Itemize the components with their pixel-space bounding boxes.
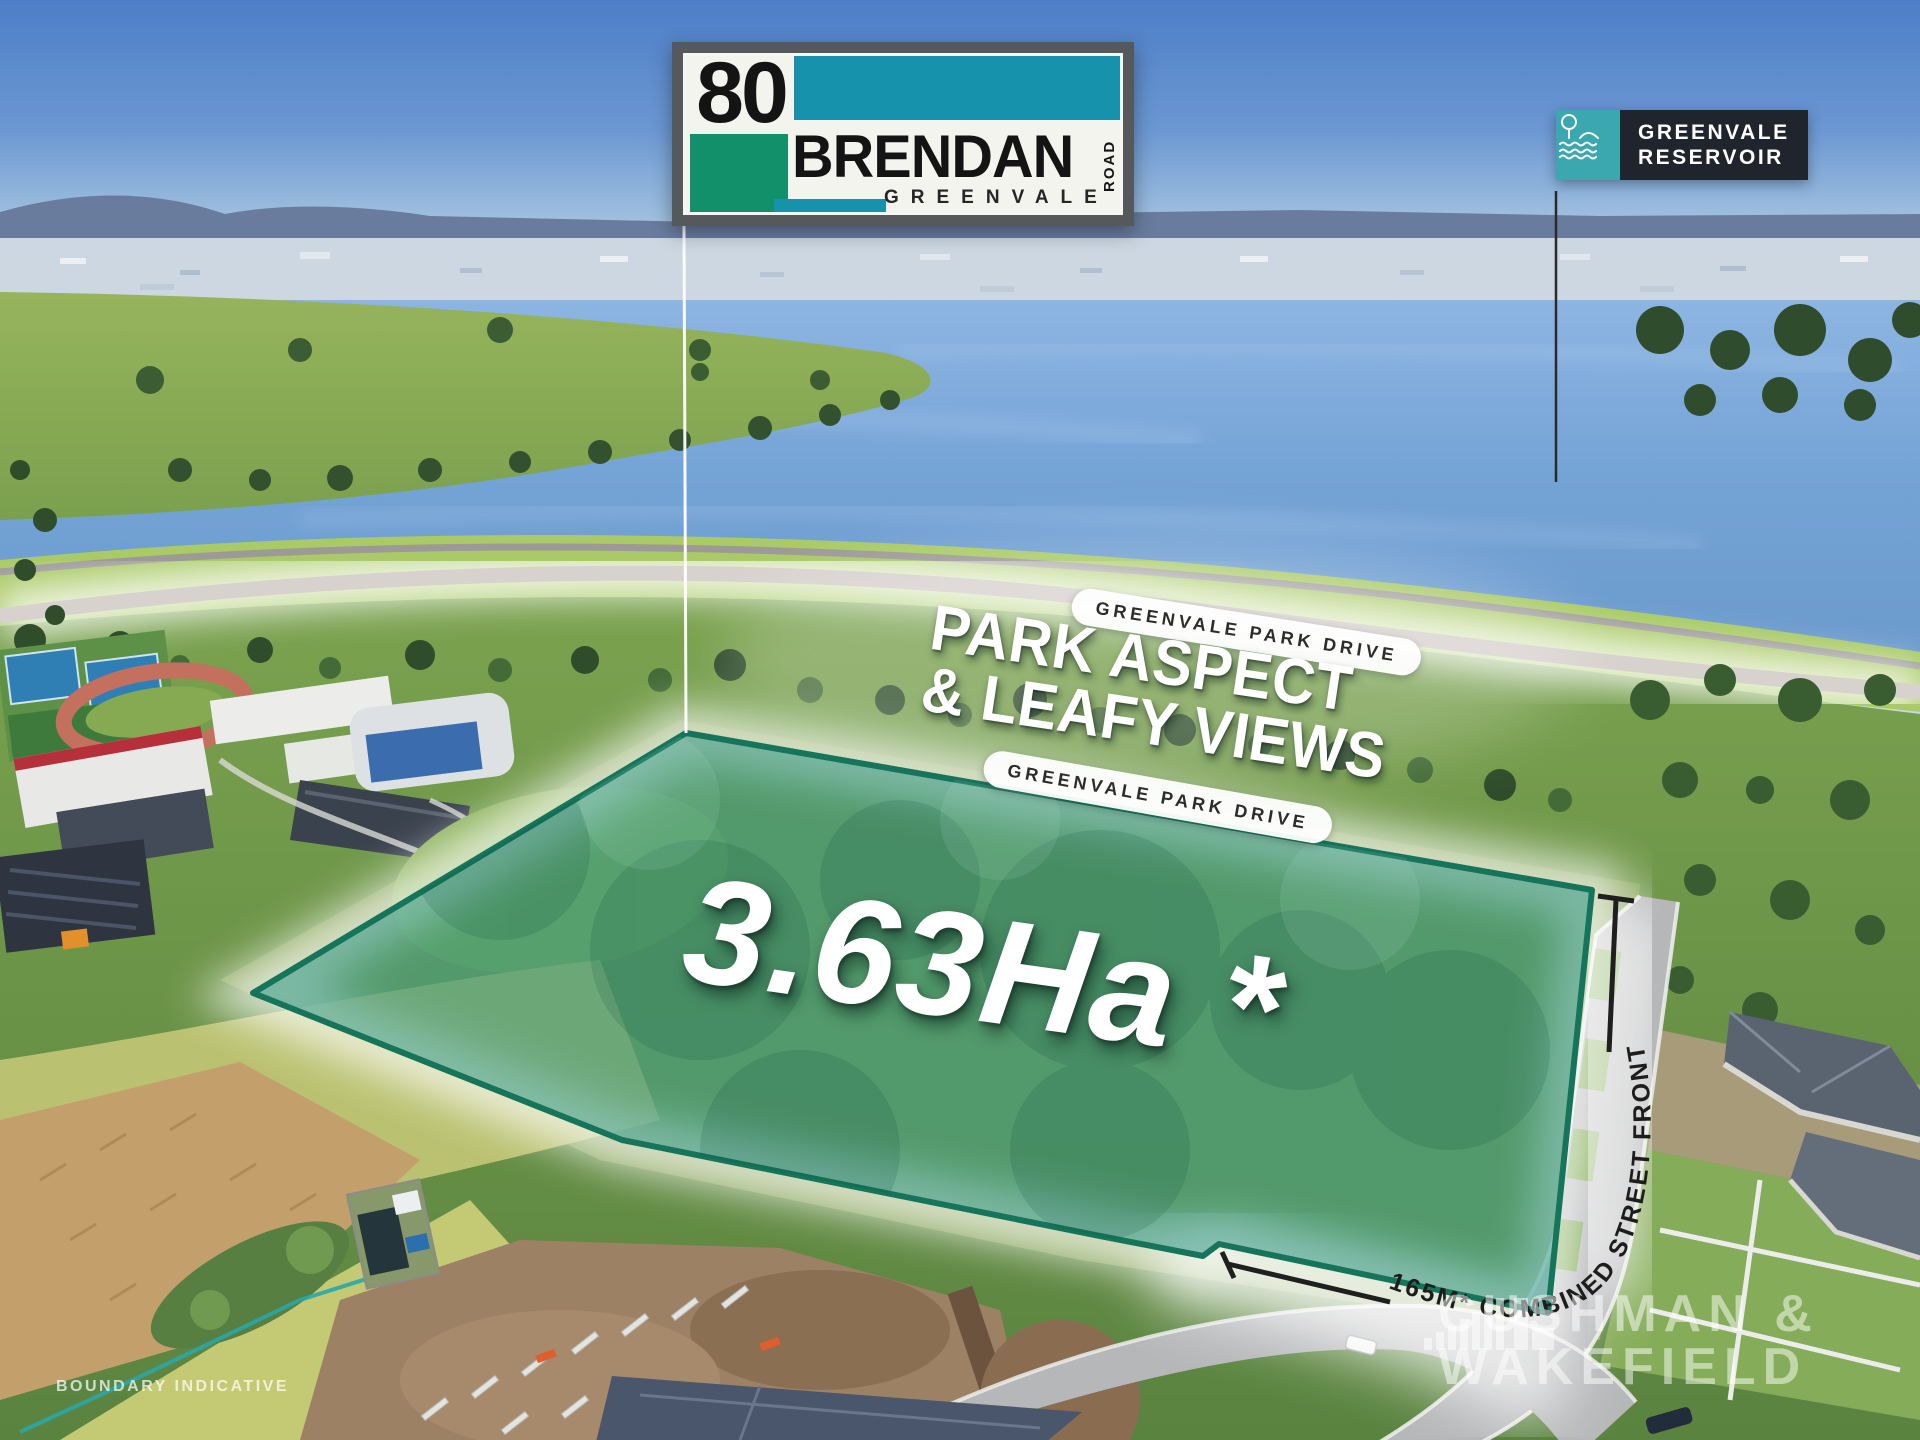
street-number: 80 (688, 53, 794, 143)
road-word: ROAD (1101, 132, 1118, 192)
sign-teal-small-block (774, 199, 886, 212)
address-sign: 80 BRENDAN ROAD GREENVALE (672, 42, 1134, 226)
boundary-disclaimer: BOUNDARY INDICATIVE (56, 1378, 289, 1396)
reservoir-badge: GREENVALE RESERVOIR (1556, 110, 1808, 180)
tree-water-icon (1556, 110, 1620, 180)
sign-teal-block (794, 56, 1120, 120)
reservoir-badge-line2: RESERVOIR (1638, 145, 1790, 170)
reservoir-badge-line1: GREENVALE (1638, 120, 1790, 145)
sign-leader-line (684, 226, 686, 733)
suburb-name: GREENVALE (884, 187, 1109, 209)
address-sign-panel: 80 BRENDAN ROAD GREENVALE (683, 53, 1123, 215)
street-name: BRENDAN (792, 122, 1073, 191)
reservoir-badge-text: GREENVALE RESERVOIR (1620, 110, 1808, 180)
aerial-marketing-image: 165M* COMBINED STREET FRONTAGE 80 BRENDA… (0, 0, 1920, 1440)
